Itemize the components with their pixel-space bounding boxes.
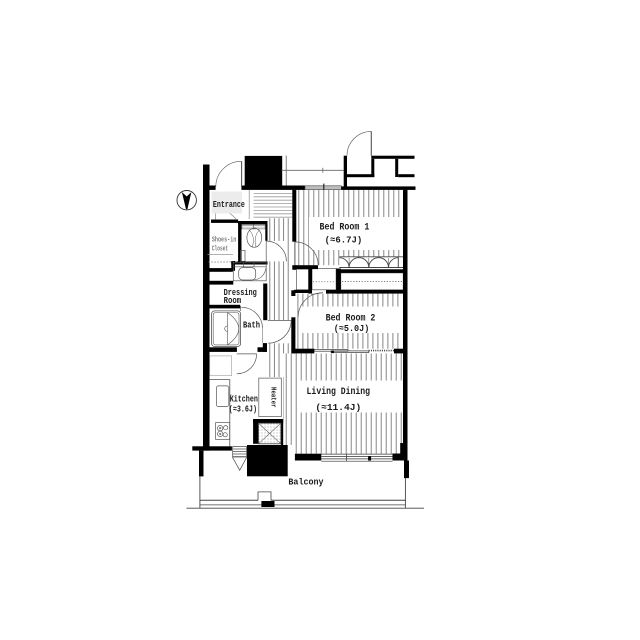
svg-text:Shoes-in: Shoes-in xyxy=(212,236,237,244)
svg-text:Room: Room xyxy=(224,295,242,306)
svg-text:Bath: Bath xyxy=(243,319,260,330)
svg-text:Entrance: Entrance xyxy=(213,199,245,210)
svg-text:(≈5.0J): (≈5.0J) xyxy=(334,323,370,334)
svg-text:Heater: Heater xyxy=(269,387,277,408)
svg-text:(≈6.7J): (≈6.7J) xyxy=(325,235,363,246)
svg-text:Closet: Closet xyxy=(212,245,228,253)
svg-text:(≈11.4J): (≈11.4J) xyxy=(315,402,361,413)
svg-text:Living Dining: Living Dining xyxy=(307,386,371,398)
svg-text:Bed Room 1: Bed Room 1 xyxy=(320,222,370,234)
svg-text:Kitchen: Kitchen xyxy=(230,393,258,404)
svg-text:Balcony: Balcony xyxy=(288,477,323,488)
svg-text:(≈3.6J): (≈3.6J) xyxy=(229,405,257,415)
